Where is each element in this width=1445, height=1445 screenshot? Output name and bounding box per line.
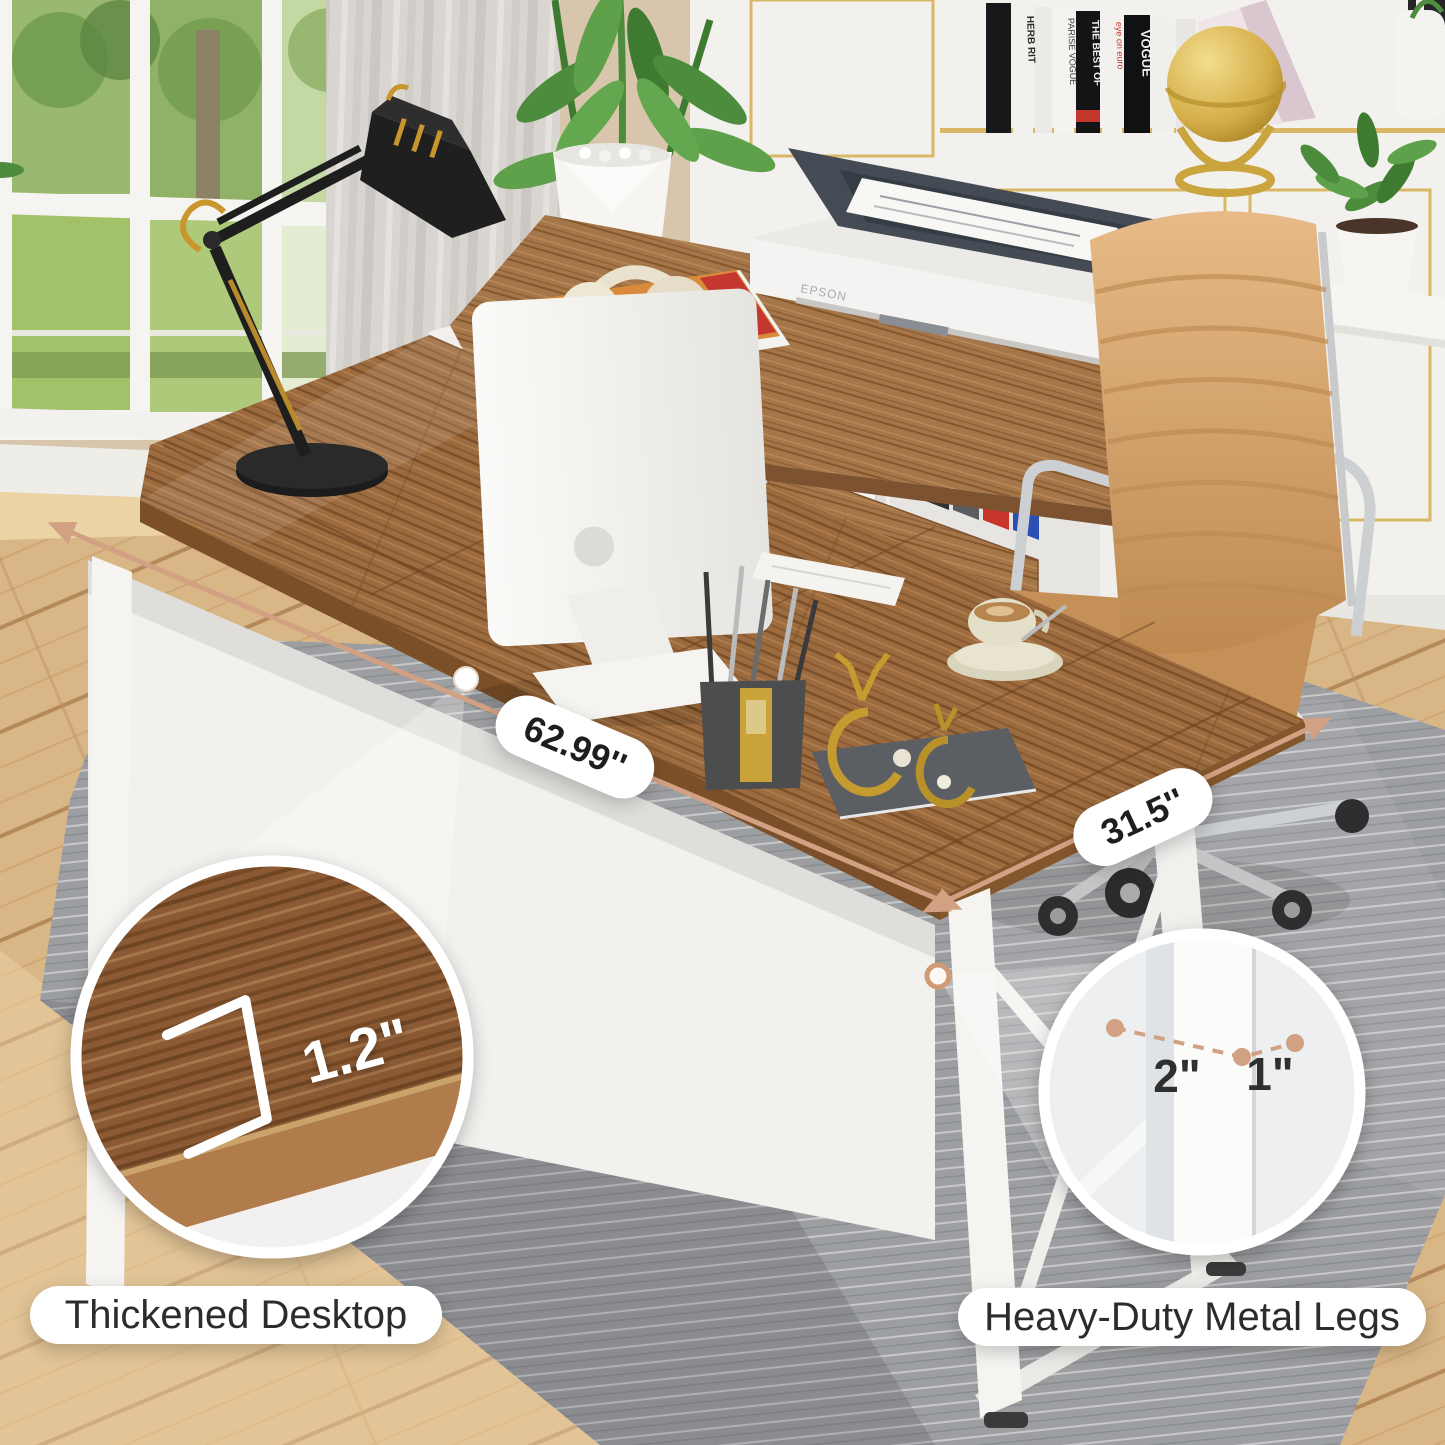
- anchor-dot-right: [927, 965, 949, 987]
- book-spine-label: THE BEST OF: [1089, 20, 1102, 86]
- fence: [12, 330, 378, 336]
- scene: HERB RIT PARISE VOGUE THE BEST OF eye on…: [0, 0, 1445, 1445]
- inset-leg: [1044, 930, 1360, 1260]
- product-image: HERB RIT PARISE VOGUE THE BEST OF eye on…: [0, 0, 1445, 1445]
- tree-trunk: [196, 30, 220, 210]
- anchor-dot-left: [454, 667, 478, 691]
- book-spine-label: eye on euro: [1114, 22, 1126, 70]
- corner-vase: [1395, 1, 1445, 118]
- book-spine-label: VOGUE: [1138, 30, 1155, 78]
- book-spine-label: HERB RIT: [1024, 16, 1037, 64]
